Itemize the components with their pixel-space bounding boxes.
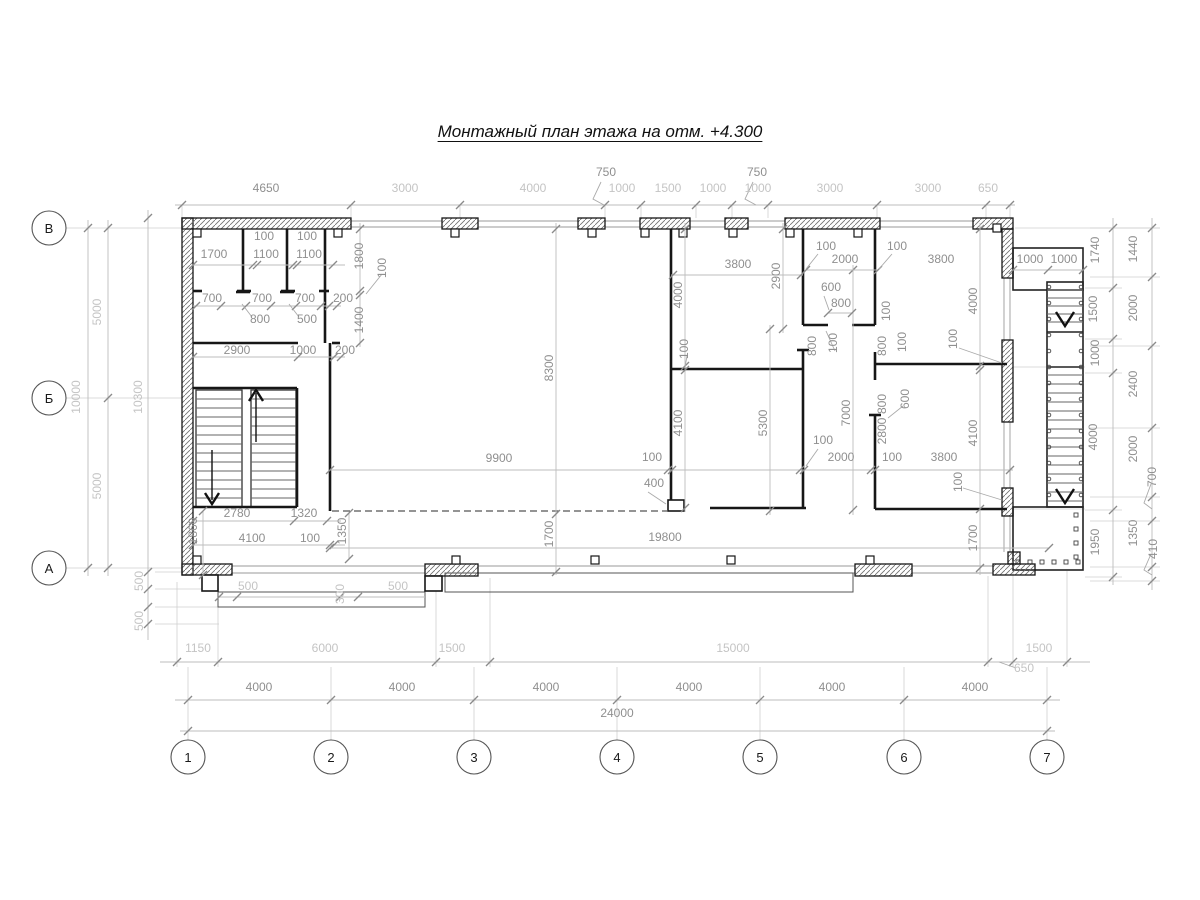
dim-label: 1000 bbox=[700, 181, 727, 195]
pilaster bbox=[591, 556, 599, 564]
dim-label: 6000 bbox=[312, 641, 339, 655]
dim-label: 1000 bbox=[609, 181, 636, 195]
dim-label: 4000 bbox=[533, 680, 560, 694]
dim-label: 750 bbox=[596, 165, 616, 179]
dim-label: 15000 bbox=[716, 641, 750, 655]
dim-label: 1440 bbox=[1126, 235, 1140, 262]
dim-label: 700 bbox=[202, 291, 222, 305]
dim-label: 4100 bbox=[671, 409, 685, 436]
dim-label: 100 bbox=[642, 450, 662, 464]
dim-label: 24000 bbox=[600, 706, 634, 720]
dim-label: 10000 bbox=[69, 380, 83, 414]
dim-label: 3000 bbox=[392, 181, 419, 195]
wall bbox=[182, 218, 351, 229]
dim-label: 1500 bbox=[439, 641, 466, 655]
dim-label: 1320 bbox=[291, 506, 318, 520]
wall bbox=[993, 564, 1035, 575]
dim-label: 1500 bbox=[655, 181, 682, 195]
dim-label: 100 bbox=[895, 332, 909, 352]
dim-label: 3800 bbox=[725, 257, 752, 271]
dim-label: 2780 bbox=[224, 506, 251, 520]
axis-number: 2 bbox=[327, 750, 334, 765]
pilaster bbox=[786, 229, 794, 237]
axis-number: 1 bbox=[184, 750, 191, 765]
dim-label: 1740 bbox=[1088, 236, 1102, 263]
wall bbox=[1008, 552, 1020, 564]
dim-label: 100 bbox=[951, 472, 965, 492]
dim-label: 100 bbox=[879, 301, 893, 321]
dim-label: 2900 bbox=[224, 343, 251, 357]
dim-label: 1000 bbox=[745, 181, 772, 195]
wall bbox=[182, 564, 232, 575]
dim-label: 100 bbox=[254, 229, 274, 243]
dim-label: 100 bbox=[297, 229, 317, 243]
dim-label: 1800 bbox=[352, 242, 366, 269]
dim-label: 2000 bbox=[828, 450, 855, 464]
dim-label: 1000 bbox=[1017, 252, 1044, 266]
dim-label: 800 bbox=[875, 336, 889, 356]
dim-label: 500 bbox=[388, 579, 408, 593]
dim-label: 100 bbox=[300, 531, 320, 545]
dim-label: 1500 bbox=[1026, 641, 1053, 655]
axis-number: 5 bbox=[756, 750, 763, 765]
dim-label: 3000 bbox=[817, 181, 844, 195]
dim-label: 100 bbox=[887, 239, 907, 253]
axis-number: 6 bbox=[900, 750, 907, 765]
dim-label: 1400 bbox=[352, 306, 366, 333]
axis-letter: А bbox=[45, 561, 54, 576]
pilaster bbox=[451, 229, 459, 237]
dim-label: 650 bbox=[978, 181, 998, 195]
pilaster bbox=[993, 224, 1001, 232]
dim-label: 1700 bbox=[542, 520, 556, 547]
pilaster bbox=[193, 556, 201, 564]
dim-label: 4000 bbox=[962, 680, 989, 694]
floor-plan-canvas: 4650300040007501000150010007501000300030… bbox=[0, 0, 1200, 900]
pilaster bbox=[334, 229, 342, 237]
pilaster bbox=[866, 556, 874, 564]
wall bbox=[442, 218, 478, 229]
partitions bbox=[193, 229, 1007, 511]
wall bbox=[725, 218, 748, 229]
dim-label: 100 bbox=[816, 239, 836, 253]
dim-label: 8300 bbox=[542, 354, 556, 381]
wall bbox=[1002, 340, 1013, 422]
dim-label: 700 bbox=[295, 291, 315, 305]
axis-number: 3 bbox=[470, 750, 477, 765]
axis-letter: В bbox=[45, 221, 54, 236]
dim-label: 1950 bbox=[1088, 528, 1102, 555]
wall bbox=[1002, 488, 1013, 516]
wall bbox=[640, 218, 690, 229]
dim-label: 5300 bbox=[756, 409, 770, 436]
dim-label: 4100 bbox=[966, 419, 980, 446]
dim-label: 700 bbox=[252, 291, 272, 305]
dim-label: 800 bbox=[831, 296, 851, 310]
dim-label: 2000 bbox=[832, 252, 859, 266]
dim-label: 5000 bbox=[90, 472, 104, 499]
dim-label: 4000 bbox=[671, 281, 685, 308]
extension-lines bbox=[66, 205, 1160, 740]
dim-label: 500 bbox=[297, 312, 317, 326]
dim-label: 1000 bbox=[1051, 252, 1078, 266]
axis-number: 4 bbox=[613, 750, 620, 765]
dim-label: 600 bbox=[898, 389, 912, 409]
dim-label: 100 bbox=[946, 329, 960, 349]
dimension-lines bbox=[84, 201, 1156, 735]
dim-label: 410 bbox=[1146, 539, 1160, 559]
dim-label: 3000 bbox=[915, 181, 942, 195]
dim-label: 4000 bbox=[676, 680, 703, 694]
pilaster bbox=[588, 229, 596, 237]
dim-label: 300 bbox=[333, 584, 347, 604]
dim-label: 4000 bbox=[966, 287, 980, 314]
wall bbox=[855, 564, 912, 576]
dim-label: 4000 bbox=[389, 680, 416, 694]
dim-label: 4000 bbox=[520, 181, 547, 195]
dim-label: 800 bbox=[875, 394, 889, 414]
dim-label: 4650 bbox=[253, 181, 280, 195]
dim-label: 1150 bbox=[185, 641, 211, 655]
dim-label: 2000 bbox=[1126, 435, 1140, 462]
pilaster bbox=[641, 229, 649, 237]
dim-label: 2800 bbox=[875, 417, 889, 444]
wall bbox=[1002, 229, 1013, 278]
porches-ramps bbox=[218, 573, 853, 607]
dim-label: 700 bbox=[1145, 467, 1159, 487]
dim-label: 650 bbox=[1014, 661, 1034, 675]
dim-label: 4000 bbox=[1086, 423, 1100, 450]
dim-label: 500 bbox=[132, 611, 146, 631]
dim-label: 2000 bbox=[1126, 294, 1140, 321]
dim-label: 1350 bbox=[1126, 519, 1140, 546]
wall bbox=[578, 218, 605, 229]
dim-label: 100 bbox=[375, 258, 389, 278]
dim-label: 100 bbox=[677, 339, 691, 359]
leader-lines bbox=[242, 182, 1152, 668]
dim-label: 19800 bbox=[648, 530, 682, 544]
drawing-sheet: Монтажный план этажа на отм. +4.300 4650… bbox=[0, 0, 1200, 900]
dim-label: 4100 bbox=[239, 531, 266, 545]
dim-label: 1500 bbox=[1086, 295, 1100, 322]
dim-label: 100 bbox=[813, 433, 833, 447]
dim-label: 9900 bbox=[486, 451, 513, 465]
pilaster bbox=[854, 229, 862, 237]
dim-label: 500 bbox=[238, 579, 258, 593]
dim-label: 1000 bbox=[290, 343, 317, 357]
dim-label: 750 bbox=[747, 165, 767, 179]
dim-label: 4000 bbox=[819, 680, 846, 694]
dim-label: 1100 bbox=[296, 247, 322, 261]
dim-label: 10300 bbox=[131, 380, 145, 414]
dim-label: 100 bbox=[826, 333, 840, 353]
dim-label: 400 bbox=[644, 476, 664, 490]
dim-label: 1700 bbox=[966, 524, 980, 551]
pilaster bbox=[729, 229, 737, 237]
wall bbox=[425, 564, 478, 576]
dim-label: 3800 bbox=[931, 450, 958, 464]
dim-label: 800 bbox=[805, 336, 819, 356]
dim-label: 200 bbox=[333, 291, 353, 305]
dim-label: 2400 bbox=[1126, 370, 1140, 397]
dim-label: 1100 bbox=[253, 247, 279, 261]
dim-label: 800 bbox=[250, 312, 270, 326]
dim-label: 1350 bbox=[335, 517, 349, 544]
dim-label: 7000 bbox=[839, 399, 853, 426]
wall bbox=[785, 218, 880, 229]
dim-label: 100 bbox=[882, 450, 902, 464]
pilaster bbox=[452, 556, 460, 564]
dim-label: 4000 bbox=[246, 680, 273, 694]
dim-label: 3800 bbox=[928, 252, 955, 266]
dim-label: 200 bbox=[335, 343, 355, 357]
dim-label: 600 bbox=[821, 280, 841, 294]
dimension-labels: 4650300040007501000150010007501000300030… bbox=[69, 165, 1160, 720]
dim-label: 1860 bbox=[186, 517, 200, 544]
dim-label: 2900 bbox=[769, 262, 783, 289]
axis-number: 7 bbox=[1043, 750, 1050, 765]
dim-label: 1000 bbox=[1088, 339, 1102, 366]
dim-label: 1700 bbox=[201, 247, 228, 261]
axis-letter: Б bbox=[45, 391, 54, 406]
dim-label: 500 bbox=[132, 571, 146, 591]
pilaster bbox=[727, 556, 735, 564]
pilaster bbox=[193, 229, 201, 237]
dim-label: 5000 bbox=[90, 298, 104, 325]
